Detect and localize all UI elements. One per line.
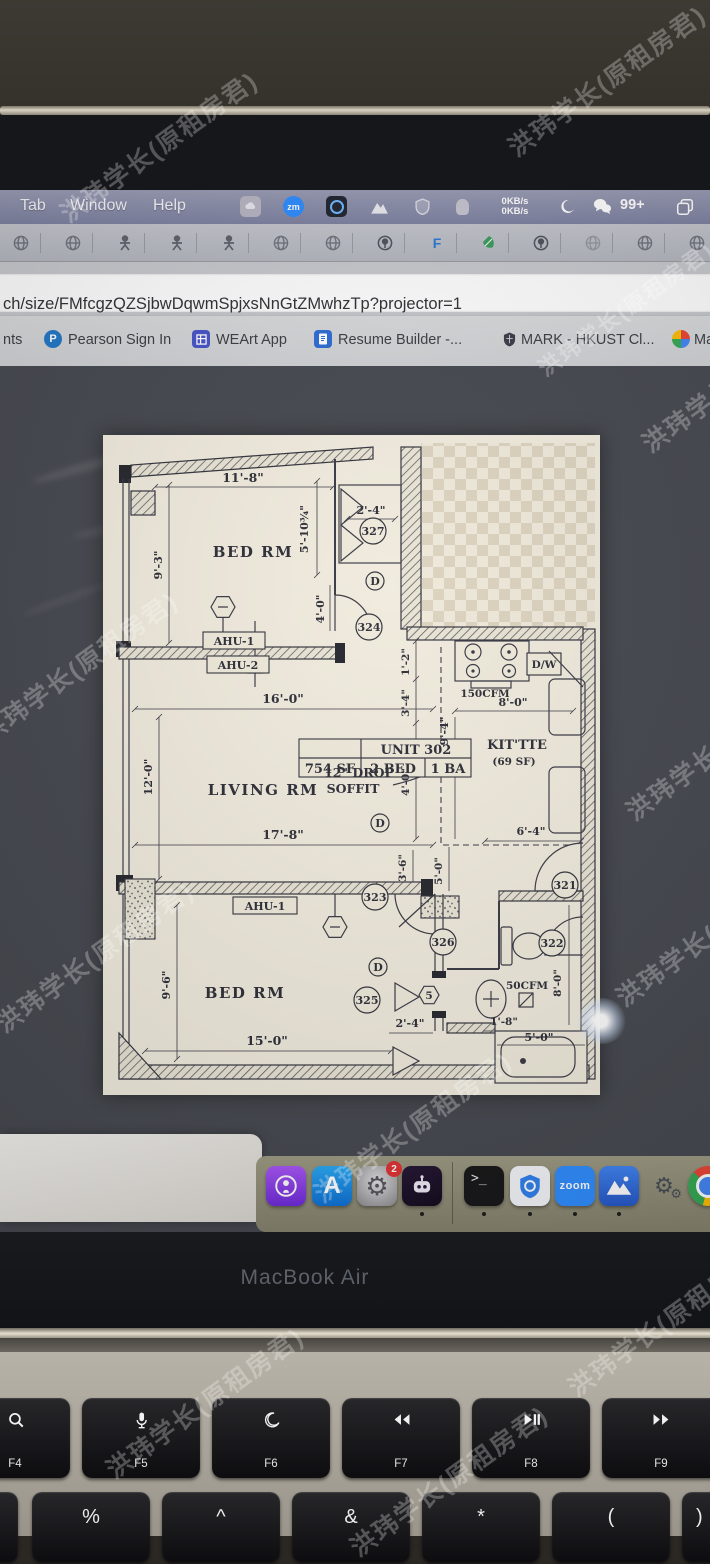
document-icon: [318, 333, 328, 345]
floorplan-image[interactable]: BED RM LIVING RM BED RM KIT'TTE (69 SF) …: [103, 435, 600, 1095]
extension-divider: [40, 233, 41, 253]
dim-label: 4'-0": [314, 595, 327, 624]
fkey-label: F5: [82, 1458, 200, 1470]
bookmark-item[interactable]: Mai...: [694, 332, 710, 348]
door-d-bubble: D: [370, 575, 380, 588]
extension-globe-icon[interactable]: [688, 234, 706, 252]
browser-url-bar: ch/size/FMfcgzQZSjbwDqwmSpjxsNnGtZMwhzTp…: [0, 262, 710, 316]
weart-favicon[interactable]: [192, 330, 210, 348]
transparency-checkerboard: [421, 443, 595, 627]
wechat-menu-icon[interactable]: [592, 196, 613, 217]
soffit-note-line2: SOFFIT: [327, 781, 381, 796]
bubble-323: 323: [364, 891, 387, 904]
dim-label: 6'-4": [517, 825, 546, 838]
key-f5[interactable]: F5: [82, 1398, 200, 1478]
record-ring-icon: [330, 200, 344, 214]
running-indicator: [420, 1212, 424, 1216]
settings-notification-badge: 2: [386, 1161, 402, 1177]
extension-divider: [352, 233, 353, 253]
dock-shield-icon[interactable]: [510, 1166, 550, 1206]
address-input[interactable]: ch/size/FMfcgzQZSjbwDqwmSpjxsNnGtZMwhzTp…: [0, 274, 710, 312]
key-4[interactable]: [0, 1492, 18, 1562]
colorful-favicon[interactable]: [672, 330, 690, 348]
moon-key-icon: [212, 1411, 330, 1430]
pearson-favicon[interactable]: P: [44, 330, 62, 348]
shield-icon: [414, 198, 431, 215]
extension-divider: [612, 233, 613, 253]
room-label-kitchenette: KIT'TTE: [487, 738, 547, 753]
bubble-322: 322: [541, 937, 564, 950]
extension-globe-pin-icon[interactable]: [376, 234, 394, 252]
recorder-menu-icon[interactable]: [326, 196, 347, 217]
key-f8[interactable]: F8: [472, 1398, 590, 1478]
play-pause-icon: [472, 1411, 590, 1428]
room-label-living: LIVING RM: [208, 781, 319, 799]
dim-label: 5'-0": [525, 1031, 554, 1044]
extension-globe-icon[interactable]: [584, 234, 602, 252]
screen-smudge: [22, 581, 109, 618]
dim-label: 15'-0": [246, 1033, 288, 1048]
kitchenette-area-label: (69 SF): [492, 756, 535, 768]
dishwasher-label: D/W: [532, 659, 557, 671]
unit-bath-label: 1 BA: [431, 762, 467, 777]
extension-globe-icon[interactable]: [12, 234, 30, 252]
dim-label: 9'-3": [152, 551, 165, 580]
chrome-center: [696, 1174, 710, 1198]
room-label-bed1: BED RM: [213, 543, 293, 561]
dim-label: 5'-10¾": [298, 505, 311, 553]
fast-forward-icon: [602, 1411, 710, 1428]
bookmarks-bar: nts P Pearson Sign In WEArt App Resume B…: [0, 316, 710, 366]
macbook-brand-label: MacBook Air: [0, 1266, 610, 1290]
macos-dock: A ⚙ 2 >_ zoom ⚙ ⚙: [256, 1156, 710, 1232]
key-8[interactable]: *: [422, 1492, 540, 1562]
bookmark-item[interactable]: WEArt App: [216, 332, 287, 348]
dim-label: 12'-0": [142, 759, 155, 796]
extension-divider: [560, 233, 561, 253]
running-indicator: [617, 1212, 621, 1216]
hand-menu-icon[interactable]: [452, 196, 473, 217]
dock-chrome-icon[interactable]: [688, 1166, 710, 1206]
mountain-menu-icon[interactable]: [369, 196, 390, 217]
extension-divider: [664, 233, 665, 253]
browser-extensions-bar: F: [0, 224, 710, 262]
fkey-label: F9: [602, 1458, 710, 1470]
focus-moon-menu-icon[interactable]: [556, 196, 577, 217]
dim-label: 8'-0": [552, 969, 564, 997]
bookmark-item[interactable]: nts: [3, 332, 22, 348]
key-5[interactable]: %: [32, 1492, 150, 1562]
crest-icon: [503, 332, 516, 347]
dock-divider: [452, 1162, 453, 1224]
extension-divider: [92, 233, 93, 253]
dock-zoom-icon[interactable]: zoom: [555, 1166, 595, 1206]
dim-label: 2'-4": [357, 504, 386, 517]
key-symbol: *: [422, 1506, 540, 1529]
hex-5-label: 5: [425, 990, 432, 1002]
bubble-327: 327: [362, 525, 385, 538]
extension-globe-icon[interactable]: [636, 234, 654, 252]
macos-menu-bar: Tab Window Help zm 0KB/s 0KB/s 99+: [0, 190, 710, 224]
bookmark-item[interactable]: Resume Builder -...: [338, 332, 462, 348]
search-icon: [0, 1411, 70, 1430]
window-switcher-menu-icon[interactable]: [674, 196, 695, 217]
key-symbol: ^: [162, 1506, 280, 1529]
key-f7[interactable]: F7: [342, 1398, 460, 1478]
bubble-324: 324: [358, 621, 381, 634]
extension-globe-icon[interactable]: [272, 234, 290, 252]
running-indicator: [482, 1212, 486, 1216]
mic-icon: [82, 1411, 200, 1430]
dock-mountain-icon[interactable]: [599, 1166, 639, 1206]
hinge-gap: [0, 1338, 710, 1352]
dim-label: 11'-8": [222, 470, 264, 485]
svg-text:F: F: [433, 235, 442, 251]
hinge-highlight: [0, 1328, 710, 1338]
bookmark-item[interactable]: MARK - HKUST Cl...: [521, 332, 654, 348]
dim-label: 3'-4": [400, 689, 412, 717]
fkey-label: F7: [342, 1458, 460, 1470]
key-symbol: &: [292, 1506, 410, 1529]
extension-divider: [248, 233, 249, 253]
zoom-zm-label: zm: [287, 202, 300, 212]
menu-window[interactable]: Window: [70, 197, 127, 215]
running-indicator: [573, 1212, 577, 1216]
ahu1b-label: AHU-1: [244, 900, 286, 913]
fkey-label: F4: [0, 1458, 70, 1470]
bookmark-item[interactable]: Pearson Sign In: [68, 332, 171, 348]
ahu1-label: AHU-1: [213, 635, 255, 648]
pearson-letter: P: [49, 333, 56, 345]
extension-letter-f-icon[interactable]: F: [428, 234, 446, 252]
menu-tab[interactable]: Tab: [20, 197, 46, 215]
dim-label: 3'-6": [397, 854, 409, 882]
laptop-lid-edge: [0, 106, 710, 115]
resume-builder-favicon[interactable]: [314, 330, 332, 348]
fkey-label: F6: [212, 1458, 330, 1470]
extension-divider: [300, 233, 301, 253]
dock-podcasts-icon[interactable]: [266, 1166, 306, 1206]
grid-icon: [196, 334, 207, 345]
dock-terminal-icon[interactable]: >_: [464, 1166, 504, 1206]
extension-divider: [196, 233, 197, 253]
status-app-icon[interactable]: [240, 196, 261, 217]
mountain-app-icon: [605, 1172, 633, 1200]
door-d-bubble: D: [375, 817, 385, 830]
bubble-325: 325: [356, 994, 379, 1007]
white-panel: [0, 1134, 262, 1222]
rewind-icon: [342, 1411, 460, 1428]
hkust-crest-favicon[interactable]: [500, 330, 518, 348]
door-d-bubble: D: [373, 961, 383, 974]
dock-settings-icon[interactable]: ⚙ 2: [357, 1166, 397, 1206]
wechat-unread-badge: 99+: [620, 197, 645, 213]
cfm50-label: 50CFM: [506, 980, 548, 992]
gear-icon: ⚙: [365, 1171, 388, 1202]
camera-glare: [575, 998, 627, 1044]
gears-small-icon: ⚙: [670, 1186, 682, 1202]
bubble-326: 326: [432, 936, 455, 949]
podcast-icon: [273, 1173, 299, 1199]
dock-chatbot-icon[interactable]: [402, 1166, 442, 1206]
extension-globe-icon[interactable]: [324, 234, 342, 252]
dim-label: 17'-8": [262, 827, 304, 842]
extension-divider: [404, 233, 405, 253]
appstore-letter: A: [323, 1172, 340, 1200]
screen-bezel-top: [0, 115, 710, 190]
room-label-bed2: BED RM: [205, 984, 285, 1002]
mountain-icon: [370, 197, 389, 216]
key-9[interactable]: (: [552, 1492, 670, 1562]
badge-count: 2: [391, 1164, 397, 1175]
network-speed[interactable]: 0KB/s 0KB/s: [487, 197, 543, 217]
dim-label: 1'-8": [490, 1016, 518, 1028]
dim-label: 9'-6": [160, 971, 173, 1000]
net-down-label: 0KB/s: [487, 207, 543, 217]
shield-menu-icon[interactable]: [412, 196, 433, 217]
key-7[interactable]: &: [292, 1492, 410, 1562]
key-symbol: %: [32, 1506, 150, 1529]
ahu2-label: AHU-2: [217, 659, 259, 672]
extension-divider: [456, 233, 457, 253]
extension-globe-pin-icon[interactable]: [532, 234, 550, 252]
shield-app-icon: [517, 1173, 543, 1199]
key-0[interactable]: ): [682, 1492, 710, 1562]
extension-divider: [508, 233, 509, 253]
key-6[interactable]: ^: [162, 1492, 280, 1562]
extension-divider: [144, 233, 145, 253]
extension-person-icon[interactable]: [168, 234, 186, 252]
zoom-wordmark: zoom: [560, 1180, 591, 1192]
dim-label: 5'-0": [433, 857, 445, 885]
key-symbol: (: [552, 1506, 670, 1529]
fkey-label: F8: [472, 1458, 590, 1470]
key-f9[interactable]: F9: [602, 1398, 710, 1478]
moon-icon: [558, 198, 576, 216]
key-symbol: ): [682, 1506, 710, 1529]
wechat-icon: [592, 196, 613, 217]
key-f6[interactable]: F6: [212, 1398, 330, 1478]
terminal-prompt: >_: [471, 1171, 487, 1186]
soffit-note-line1: 12" DROP: [324, 765, 394, 780]
extension-person-icon[interactable]: [220, 234, 238, 252]
dim-label: 16'-0": [262, 691, 304, 706]
running-indicator: [528, 1212, 532, 1216]
bubble-321: 321: [554, 879, 577, 892]
dim-label: 4'-0": [400, 768, 412, 796]
dock-gears-icon[interactable]: ⚙ ⚙: [644, 1166, 684, 1206]
dim-label: 8'-0": [499, 696, 528, 709]
dock-appstore-icon[interactable]: A: [312, 1166, 352, 1206]
key-f4[interactable]: F4: [0, 1398, 70, 1478]
zoom-menu-icon[interactable]: zm: [283, 196, 304, 217]
menu-help[interactable]: Help: [153, 197, 186, 215]
dim-label: 9'-4": [438, 717, 451, 746]
dim-label: 2'-4": [396, 1017, 425, 1030]
robot-icon: [409, 1173, 435, 1199]
extension-leaf-icon[interactable]: [480, 234, 498, 252]
cloud-icon: [244, 200, 257, 213]
floorplan-drawing: BED RM LIVING RM BED RM KIT'TTE (69 SF) …: [103, 435, 600, 1095]
dim-label: 1'-2": [400, 648, 412, 676]
extension-person-icon[interactable]: [116, 234, 134, 252]
hand-icon: [456, 199, 469, 215]
url-text: ch/size/FMfcgzQZSjbwDqwmSpjxsNnGtZMwhzTp…: [3, 295, 462, 314]
windows-stack-icon: [675, 197, 695, 217]
extension-globe-icon[interactable]: [64, 234, 82, 252]
